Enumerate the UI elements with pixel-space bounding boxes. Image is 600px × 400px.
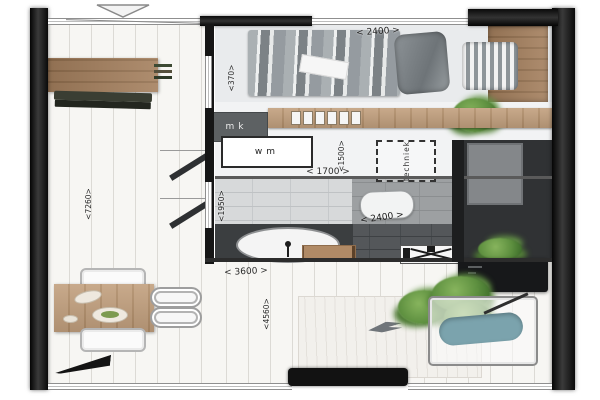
door-swing-icon-1 — [160, 146, 208, 178]
plate-2 — [92, 307, 128, 323]
washing-machine-label: wm — [223, 138, 311, 166]
partition-utility — [452, 140, 464, 262]
dining-chair-right-1 — [150, 287, 202, 308]
pillow-striped — [462, 42, 518, 90]
hall-shelf — [268, 108, 552, 128]
dim-living-depth: <4560> — [261, 291, 273, 337]
lounge-chair-strut — [483, 292, 528, 314]
plate-3 — [63, 315, 78, 323]
desk-items — [154, 64, 172, 67]
radiator — [288, 368, 408, 386]
window-bottom-left — [48, 383, 292, 390]
wall-top-right — [468, 9, 558, 26]
sideboard-desk — [48, 58, 158, 92]
wall-bath-living — [205, 258, 552, 262]
wall-top-mid — [200, 16, 312, 26]
plate-1 — [73, 288, 103, 306]
dining-chair-bottom — [80, 328, 146, 352]
dining-table — [54, 284, 154, 332]
pillow-dark — [393, 31, 450, 95]
door-swing-icon-2 — [160, 194, 208, 226]
floor-plan: mk wm techniek — [0, 0, 600, 400]
glass-door-hall — [205, 56, 212, 108]
glass-door-bathroom — [205, 182, 212, 228]
wall-left — [30, 8, 48, 390]
shower-unit — [467, 143, 523, 205]
faucet-stem — [287, 246, 289, 257]
dim-hall-width: < 1700 > — [282, 166, 374, 178]
triangle-marker-icon — [96, 4, 150, 18]
window-top-bedroom — [312, 18, 468, 25]
wall-hall-bath — [215, 176, 552, 179]
dining-chair-right-2 — [150, 307, 202, 328]
dim-bedroom-side: <370> — [226, 58, 238, 98]
lounge-chair-cushion — [438, 311, 524, 346]
washing-machine: wm — [221, 136, 313, 168]
shelf-books — [292, 112, 360, 124]
lounge-chair — [428, 296, 538, 366]
dim-left-total: <7260> — [83, 181, 95, 227]
techniek-label: techniek — [387, 133, 425, 189]
dim-bath-depth: <1950> — [216, 184, 228, 228]
window-bottom-right — [408, 383, 552, 390]
dim-hall-depth: <1500> — [336, 134, 348, 178]
plant-utility — [478, 238, 522, 260]
wall-right — [552, 8, 575, 390]
